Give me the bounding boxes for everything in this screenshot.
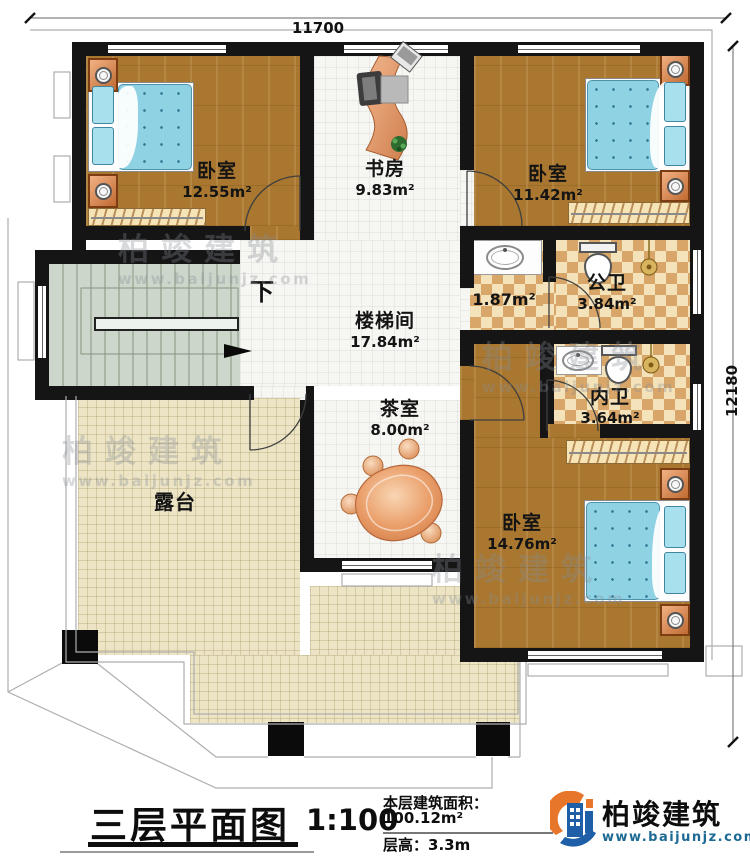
wall	[306, 386, 314, 400]
title-underline	[88, 842, 298, 847]
room-name: 露台	[130, 490, 220, 514]
window	[690, 384, 704, 430]
bed-blanket	[587, 80, 659, 170]
column	[268, 722, 304, 756]
room-name: 楼梯间	[325, 310, 445, 333]
column	[62, 630, 98, 664]
room-area: 3.84m²	[558, 295, 656, 313]
floor-height-label: 层高：	[383, 836, 428, 854]
floor-terrace-main	[78, 398, 300, 655]
pillow	[664, 506, 686, 548]
lamp-icon	[667, 612, 684, 629]
pillow	[664, 82, 686, 122]
lamp-icon	[95, 67, 112, 84]
window	[528, 648, 662, 662]
floor-door-patch	[250, 226, 300, 240]
wall	[540, 344, 554, 424]
window	[35, 286, 49, 358]
room-label-stair-hall: 楼梯间 17.84m²	[325, 310, 445, 351]
wall	[300, 400, 314, 558]
floor-stairs	[49, 264, 240, 386]
wall	[460, 240, 474, 288]
room-label-bedroom-top-right: 卧室 11.42m²	[488, 163, 608, 204]
floor-area-row: 本层建筑面积：100.12m²	[383, 792, 553, 832]
pillow	[92, 127, 114, 165]
room-name: 卧室	[157, 160, 277, 183]
room-area: 14.76m²	[462, 535, 582, 553]
room-name: 卧室	[488, 163, 608, 186]
room-label-bedroom-top-left: 卧室 12.55m²	[157, 160, 277, 201]
room-area: 17.84m²	[325, 333, 445, 351]
sink	[562, 350, 594, 371]
window	[518, 42, 640, 56]
wall	[300, 42, 314, 240]
room-label-vanity: 1.87m²	[458, 290, 550, 309]
floor-bedroom-nook	[474, 344, 540, 438]
nightstand	[660, 604, 690, 636]
stairs-down-label: 下	[250, 272, 274, 307]
wall	[72, 226, 250, 240]
lamp-icon	[95, 183, 112, 200]
wall	[460, 226, 704, 240]
nightstand	[660, 52, 690, 86]
room-name: 公卫	[558, 272, 656, 295]
nightstand	[660, 170, 690, 202]
room-label-study: 书房 9.83m²	[325, 158, 445, 199]
dimension-right: 12180	[723, 359, 741, 423]
room-area: 8.00m²	[345, 421, 455, 439]
wardrobe	[88, 208, 206, 226]
room-label-bedroom-bottom-right: 卧室 14.76m²	[462, 512, 582, 553]
pillow	[664, 126, 686, 166]
nightstand	[660, 468, 690, 500]
lamp-icon	[667, 476, 684, 493]
wall	[460, 330, 704, 344]
toilet-tank	[579, 242, 617, 253]
floor-terrace-south	[190, 655, 520, 723]
drawing-title: 三层平面图	[90, 795, 290, 849]
room-area: 1.87m²	[458, 290, 550, 309]
wall	[460, 42, 474, 170]
wall	[72, 42, 86, 250]
room-label-private-bath: 内卫 3.64m²	[560, 386, 660, 427]
wall	[35, 386, 240, 400]
dimension-top: 11700	[288, 19, 348, 37]
floor-door-patch	[460, 170, 474, 226]
wall	[540, 424, 548, 438]
title-underline-thin	[60, 851, 314, 853]
lamp-icon	[667, 178, 684, 195]
room-label-terrace: 露台	[130, 490, 220, 514]
floor-height-row: 层高：3.3m	[383, 834, 553, 859]
floor-terrace-below-tea	[310, 586, 460, 655]
wall	[543, 240, 556, 282]
nightstand	[88, 174, 118, 208]
window	[108, 42, 226, 56]
floor-area-value: 100.12m²	[383, 809, 463, 827]
floor-door-patch	[460, 366, 474, 420]
sink	[486, 245, 524, 270]
floor-study	[314, 56, 460, 240]
room-name: 内卫	[560, 386, 660, 409]
wall	[690, 42, 704, 662]
wardrobe	[566, 440, 690, 464]
brand-website: www.baijunjz.com	[602, 830, 750, 845]
room-area: 11.42m²	[488, 186, 608, 204]
room-name: 卧室	[462, 512, 582, 535]
pillow	[92, 86, 114, 124]
toilet-tank	[601, 345, 637, 356]
lamp-icon	[667, 61, 684, 78]
window	[342, 558, 432, 572]
brand-logo-icon	[550, 791, 600, 853]
brand-name: 柏竣建筑	[602, 793, 722, 833]
room-area: 12.55m²	[157, 183, 277, 201]
room-area: 9.83m²	[325, 181, 445, 199]
room-name: 茶室	[345, 398, 455, 421]
window	[344, 42, 448, 56]
room-area: 3.64m²	[560, 409, 660, 427]
window	[690, 250, 704, 314]
column	[476, 722, 510, 756]
drawing-info: 本层建筑面积：100.12m² 层高：3.3m	[383, 792, 553, 859]
room-label-tea-room: 茶室 8.00m²	[345, 398, 455, 439]
wall	[460, 344, 474, 366]
pillow	[664, 552, 686, 594]
floor-plan: 11700 12180 卧室 12.55m² 书房 9.83m² 卧室 11.4…	[0, 0, 750, 862]
floor-height-value: 3.3m	[428, 836, 470, 854]
wardrobe	[568, 202, 690, 224]
room-name: 书房	[325, 158, 445, 181]
wall	[240, 386, 254, 400]
room-label-public-bath: 公卫 3.84m²	[558, 272, 656, 313]
bed-blanket	[586, 502, 660, 600]
wall	[35, 250, 240, 264]
